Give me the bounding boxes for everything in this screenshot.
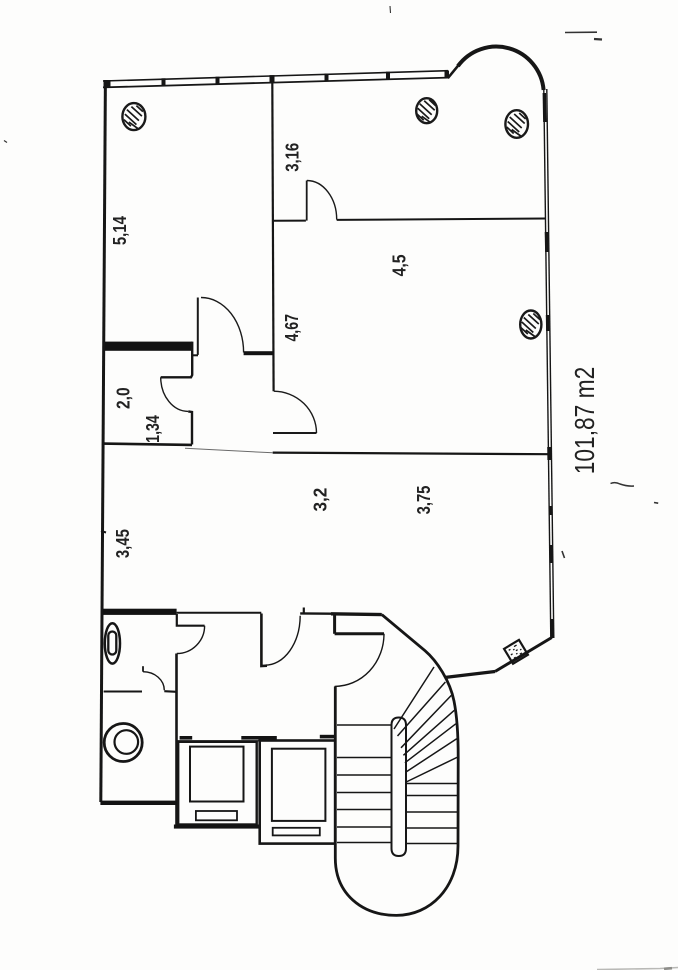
svg-text:4,5: 4,5 [388, 254, 409, 276]
svg-text:101,87 m2: 101,87 m2 [569, 367, 600, 475]
svg-text:4,67: 4,67 [281, 314, 302, 342]
svg-text:5,14: 5,14 [109, 216, 130, 246]
svg-text:2,0: 2,0 [113, 387, 134, 409]
svg-text:3,2: 3,2 [310, 488, 331, 512]
svg-text:3,75: 3,75 [413, 486, 434, 515]
svg-text:3,16: 3,16 [282, 143, 303, 172]
svg-text:3,45: 3,45 [112, 529, 133, 558]
svg-text:1,34: 1,34 [142, 415, 163, 443]
